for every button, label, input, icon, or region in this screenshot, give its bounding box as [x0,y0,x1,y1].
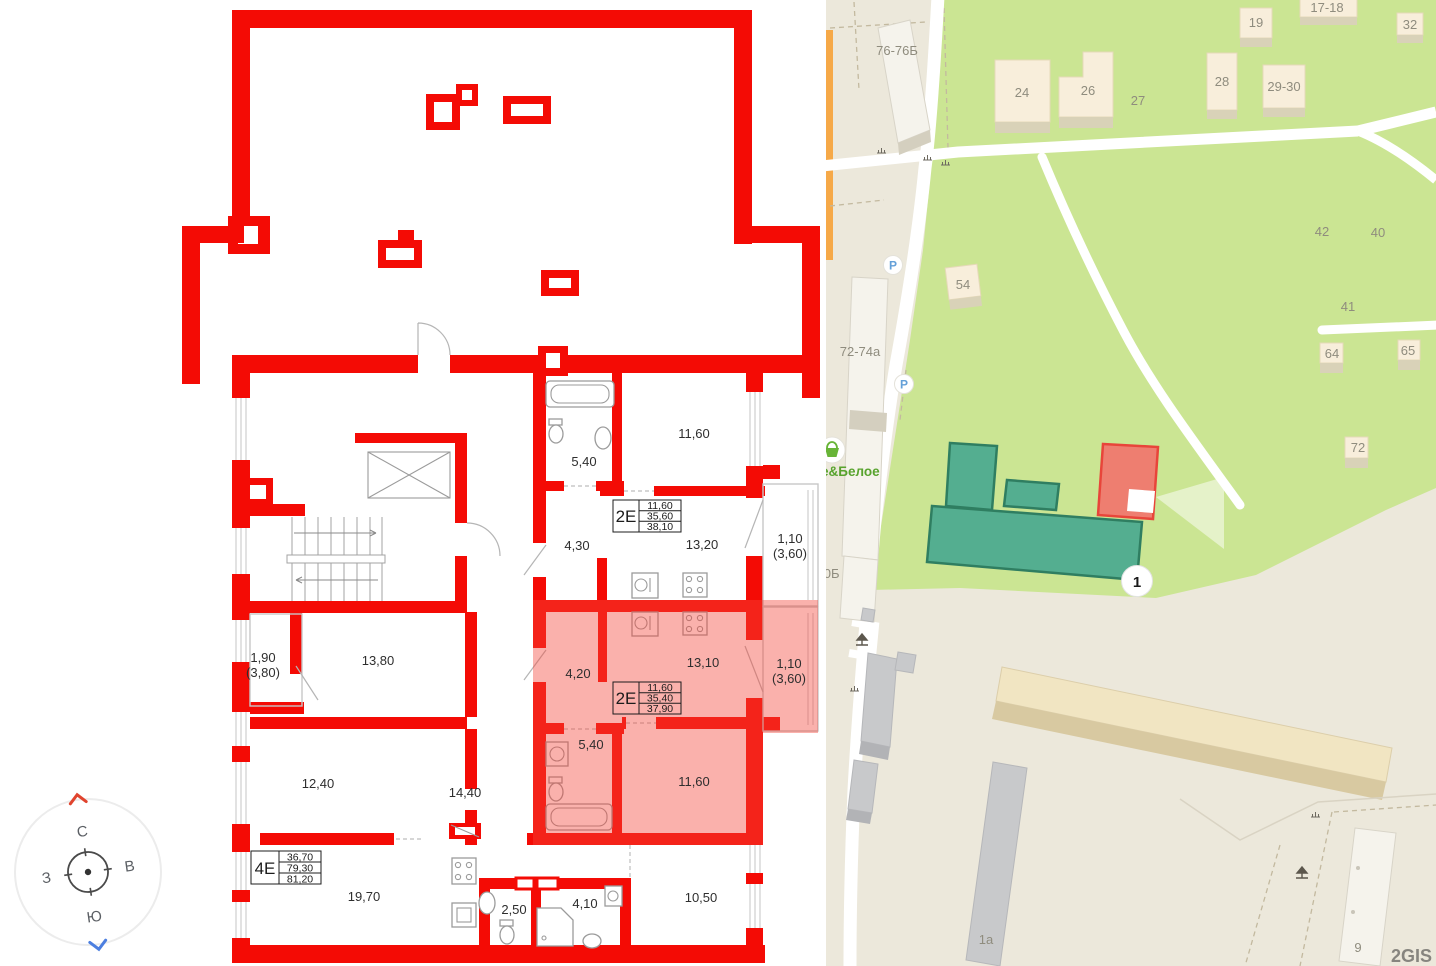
apartment-table-2e-top: 2Е 11,60 35,60 38,10 [613,500,681,533]
map-label: 24 [1015,85,1029,100]
svg-text:P: P [900,378,908,392]
map-attribution-logo[interactable]: 2GIS [1391,946,1432,966]
map-label: 19 [1249,15,1263,30]
store-name: е&Белое [826,464,880,479]
room-label: (3,60) [773,546,807,561]
room-label: 4,10 [572,896,597,911]
stairwell [287,452,450,601]
apartment-type: 4Е [255,859,276,878]
room-label: 13,10 [687,655,720,670]
map-canvas[interactable]: P P е&Белое 76-76Б 24 26 27 [826,0,1436,966]
room-label: 12,40 [302,776,335,791]
compass-south: Ю [86,908,103,927]
map-label: 26 [1081,83,1095,98]
floor-plan: 5,40 11,60 4,30 13,20 1,10 (3,60) 4,20 1… [0,0,826,966]
room-label: 14,40 [449,785,482,800]
screenshot-root: 5,40 11,60 4,30 13,20 1,10 (3,60) 4,20 1… [0,0,1436,966]
apartment-table-4e: 4Е 36,70 79,30 81,20 [251,851,321,886]
svg-text:P: P [889,259,897,273]
total-area: 37,90 [647,703,673,715]
map-label: 76-76Б [876,43,918,58]
parking-icon[interactable]: P [895,375,914,394]
svg-text:1: 1 [1133,574,1141,591]
room-label: 11,60 [678,426,710,441]
room-label: (3,60) [772,671,806,686]
map-label: 70Б [826,566,840,581]
map-label: 1а [979,932,994,947]
room-label: 11,60 [678,774,710,789]
room-label: 1,10 [777,531,802,546]
map-label: 42 [1315,224,1329,239]
map-label: 27 [1131,93,1145,108]
total-area: 81,20 [287,874,313,886]
compass: С В Ю З [15,788,161,955]
total-area: 38,10 [647,521,673,533]
parking-icon[interactable]: P [884,256,903,275]
map-label: 41 [1341,299,1355,314]
map-marker-1[interactable]: 1 [1122,566,1153,597]
map-label: 54 [956,277,970,292]
apartment-type: 2Е [616,689,637,708]
map-label: 72 [1351,440,1365,455]
room-label: 19,70 [348,889,381,904]
room-label: 1,10 [776,656,801,671]
room-label: 5,40 [578,737,603,752]
map-label: 9 [1354,940,1361,955]
map-label: 64 [1325,346,1339,361]
edge-building [826,30,833,260]
map-label: 72-74а [840,344,881,359]
room-label: 13,80 [362,653,395,668]
map-label: 29-30 [1267,79,1300,94]
room-label: 1,90 [250,650,275,665]
map-label: 65 [1401,343,1415,358]
selected-apartment-highlight[interactable] [533,600,818,845]
map-label: 32 [1403,17,1417,32]
map-panel: P P е&Белое 76-76Б 24 26 27 [826,0,1436,966]
map-label: 40 [1371,225,1385,240]
room-label: 10,50 [685,890,718,905]
room-label: (3,80) [246,665,280,680]
floor-plan-panel: 5,40 11,60 4,30 13,20 1,10 (3,60) 4,20 1… [0,0,826,966]
room-label: 13,20 [686,537,719,552]
room-label: 4,30 [564,538,589,553]
room-label: 5,40 [571,454,596,469]
map-label: 17-18 [1310,0,1343,15]
room-label: 4,20 [565,666,590,681]
room-label: 2,50 [501,902,526,917]
apartment-type: 2Е [616,507,637,526]
map-label: 28 [1215,74,1229,89]
